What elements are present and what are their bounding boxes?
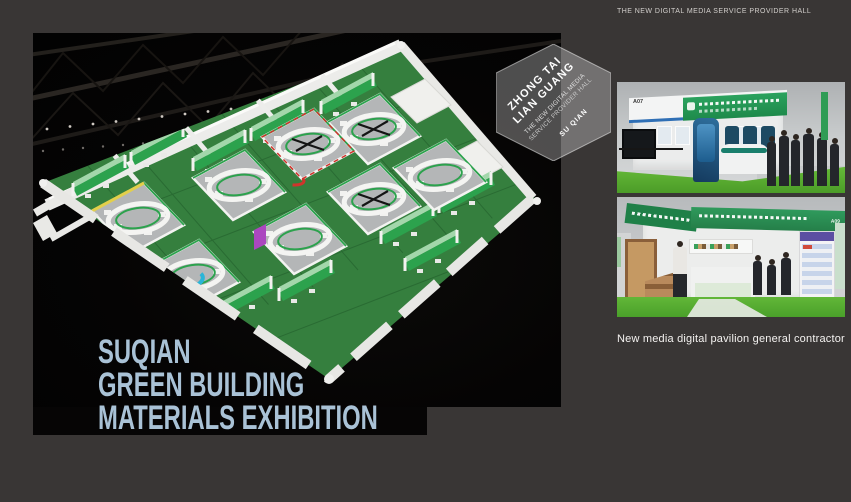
neighbor-banner <box>617 237 621 267</box>
booth-fascia-main: A09 <box>691 207 845 232</box>
hero-title-line2: GREEN BUILDING <box>98 369 378 402</box>
kiosk-screen <box>697 124 715 162</box>
page-header-label: THE NEW DIGITAL MEDIA SERVICE PROVIDER H… <box>617 8 811 15</box>
visitor <box>779 136 789 186</box>
sign-text-row <box>699 107 759 113</box>
sign-text-row <box>699 99 781 106</box>
visitor <box>781 258 791 295</box>
exhibit-photo-2: A09 <box>617 197 845 317</box>
visitor <box>753 261 762 295</box>
portfolio-page: THE NEW DIGITAL MEDIA SERVICE PROVIDER H… <box>0 0 851 502</box>
visitor <box>803 134 814 186</box>
visitors-group <box>753 255 799 295</box>
vertical-banner <box>821 92 828 140</box>
right-side-panel <box>835 223 845 289</box>
visitor <box>817 138 827 186</box>
visitor <box>767 142 776 186</box>
hexagon-badge: ZHONG TAI LIAN GUANG THE NEW DIGITAL MED… <box>496 44 611 161</box>
booth-fascia-left <box>625 203 699 232</box>
sample-chips <box>694 244 738 249</box>
visitor <box>830 144 839 186</box>
hero-title: SUQIAN GREEN BUILDING MATERIALS EXHIBITI… <box>98 336 378 435</box>
hero-title-line3: MATERIALS EXHIBITION <box>98 402 378 435</box>
visitor <box>791 140 800 186</box>
poster-rows <box>802 244 832 294</box>
sign-logo <box>687 102 695 110</box>
visitors-group <box>767 122 842 186</box>
product-poster <box>799 231 835 299</box>
tv-screen <box>622 129 656 159</box>
wall-sign <box>689 239 753 254</box>
wall-poster <box>657 126 672 145</box>
poster-header <box>800 232 834 241</box>
desk-sign-band <box>721 148 767 153</box>
exhibit-photo-1: A07 <box>617 82 845 193</box>
barrier-rail <box>619 148 683 150</box>
hero-title-line1: SUQIAN <box>98 336 378 369</box>
visitor <box>767 265 776 295</box>
photo-caption: New media digital pavilion general contr… <box>617 333 845 345</box>
sign-text-row <box>632 212 690 222</box>
wall-poster <box>675 126 690 145</box>
poster-red-chip <box>803 245 812 249</box>
sign-text-row <box>699 214 809 220</box>
